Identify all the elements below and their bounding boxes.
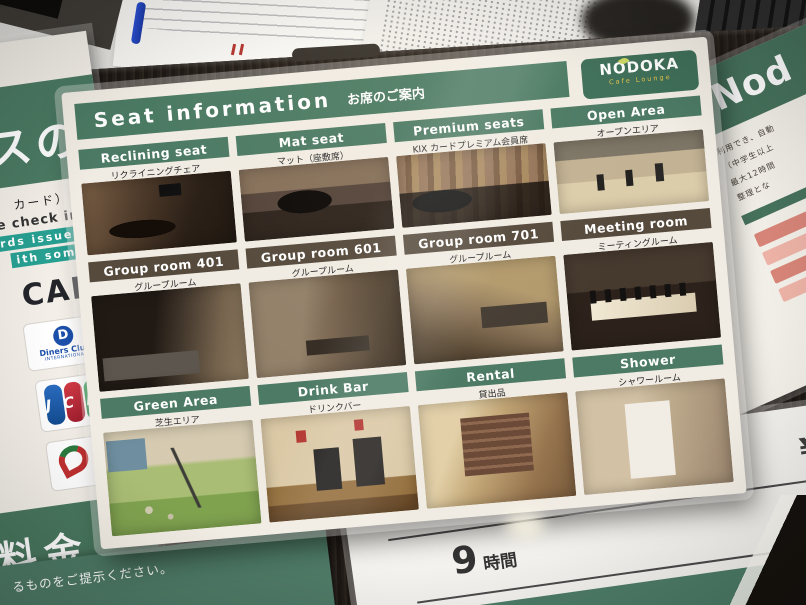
seat-cell: Meeting room ミーティングルーム (560, 208, 721, 351)
page-subtitle: お席のご案内 (346, 82, 425, 108)
seat-cell: Group room 401 グループルーム (88, 249, 249, 392)
light-reflection (505, 512, 545, 538)
seat-cell: Green Area 芝生エリア (100, 386, 261, 537)
photo-group-room-401 (91, 283, 249, 392)
photo-drink-bar (260, 406, 418, 523)
seat-cell: Drink Bar ドリンクバー (257, 372, 418, 523)
seat-cell: Shower シャワールーム (572, 345, 733, 496)
seat-information-card: Seat information お席のご案内 NODOKA Cafe Loun… (61, 37, 746, 550)
hours-label: 9 時間 (449, 532, 519, 584)
photo-of-lounge-counter: スの カード）を e check in. rds issued ith some… (0, 0, 806, 605)
photo-rental (418, 392, 576, 509)
photo-green-area (103, 420, 261, 537)
seat-cell: Open Area オープンエリア (550, 95, 709, 214)
seat-cell: Group room 701 グループルーム (403, 222, 564, 365)
seat-cell-label: Shower (619, 351, 676, 371)
seat-cell-label: Rental (466, 365, 516, 384)
page-title: Seat information (93, 88, 332, 133)
seat-grid: Reclining seat リクライニングチェア Mat seat マット（座… (78, 95, 733, 536)
seat-cell: Premium seats KIX カードプレミアム会員席 (393, 109, 552, 228)
seat-cell: Mat seat マット（座敷席） (236, 123, 395, 242)
price-value-partial: ¥4,9 (797, 422, 806, 469)
photo-shower (575, 378, 733, 495)
desk-corner-bottom-right (650, 495, 806, 605)
seat-cell: Group room 601 グループルーム (246, 236, 407, 379)
photo-group-room-701 (406, 256, 564, 365)
photo-group-room-601 (248, 269, 406, 378)
photo-premium-seats (396, 143, 552, 228)
plus-swoosh-icon (54, 440, 94, 479)
photo-meeting-room (563, 242, 721, 351)
seat-cell: Reclining seat リクライニングチェア (78, 137, 237, 256)
photo-mat-seat (239, 157, 395, 242)
photo-reclining-seat (81, 171, 237, 256)
photo-open-area (553, 129, 709, 214)
seat-cell: Rental 貸出品 (415, 358, 576, 509)
nodoka-logo: NODOKA Cafe Lounge (580, 50, 699, 100)
